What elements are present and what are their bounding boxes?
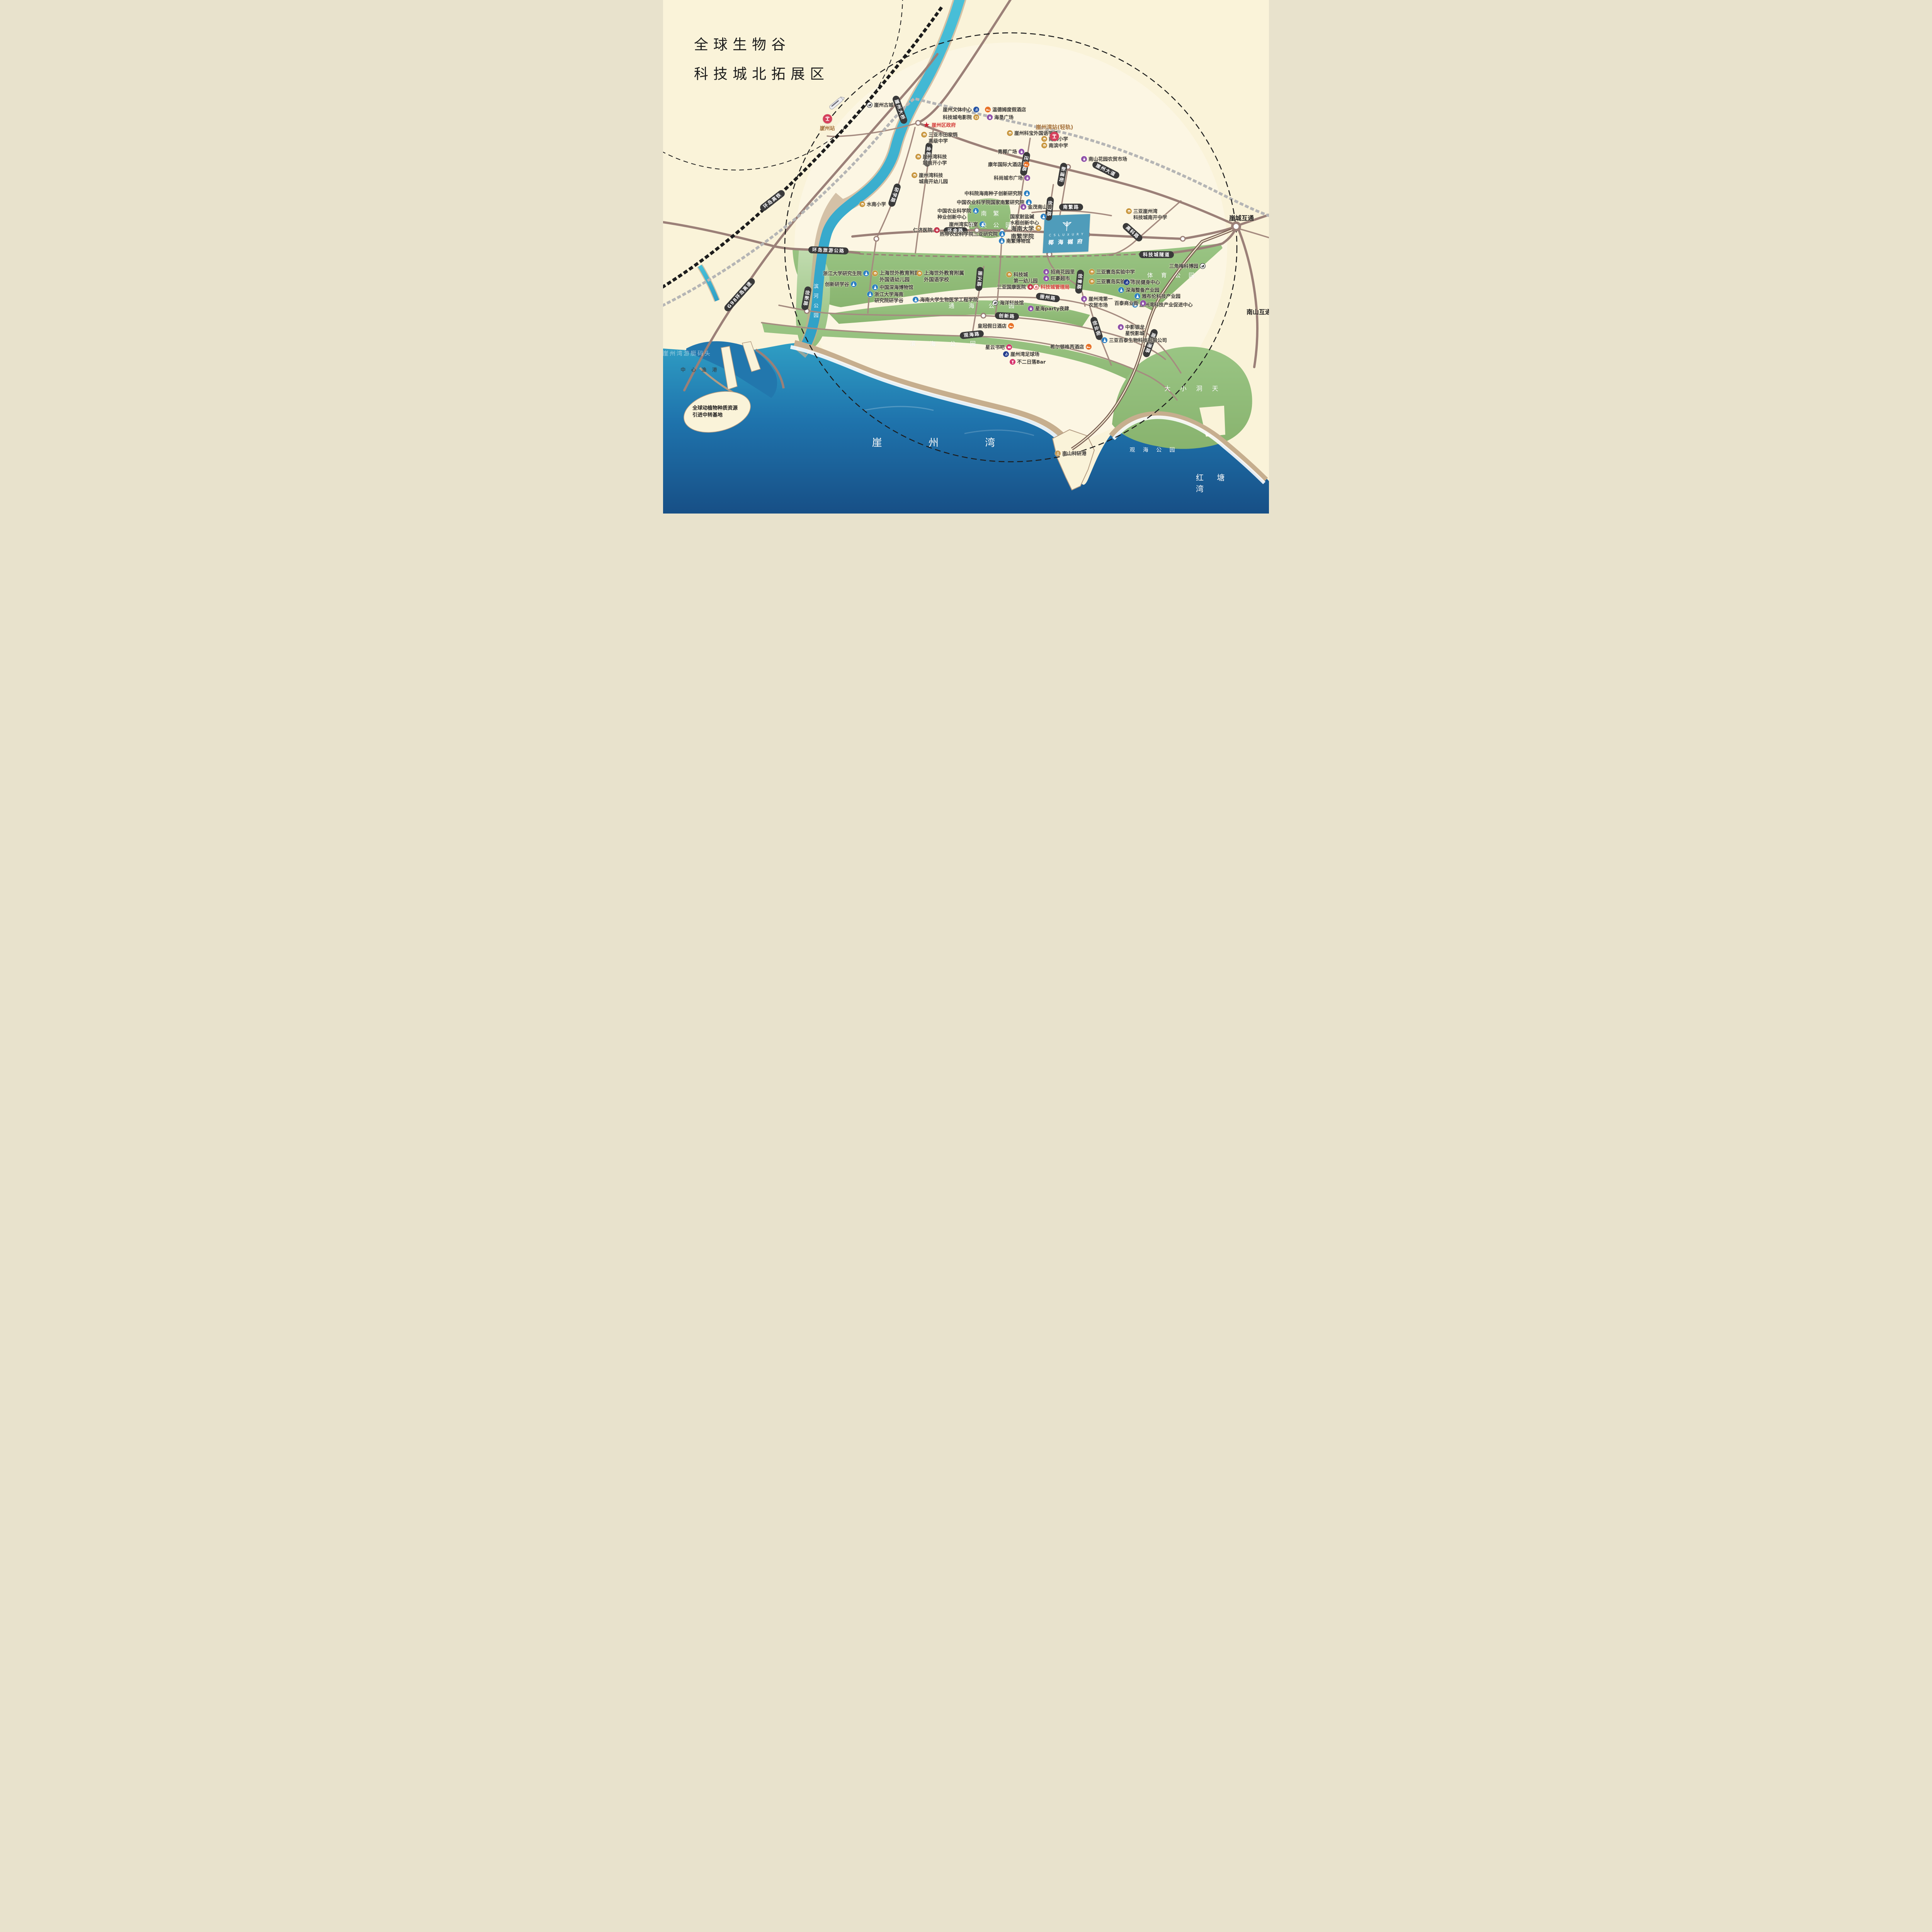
poi-label: 崖州湾科技城南开幼儿园 (912, 172, 948, 185)
poi-text: 旺豪超市 (1051, 276, 1070, 282)
runner-icon (973, 107, 979, 112)
poi-text: 水南小学 (867, 201, 886, 207)
poi-text: 科尚城市广场 (994, 175, 1023, 181)
poi-label: 旺豪超市 (1043, 276, 1070, 282)
poi-label: 中国深海博物馆 (872, 284, 913, 291)
poi-text: 南山花园农贸市场 (1088, 156, 1127, 162)
poi-text: 崖州湾科技城南开幼儿园 (919, 172, 948, 185)
poi-text: 金茂南山荟 (1028, 204, 1052, 210)
area-label: 通 海 公 园 (949, 302, 1020, 310)
poi-label: 崖州湾科技城南开小学 (915, 154, 947, 167)
yazhou-station: 崖州站 (820, 114, 835, 132)
flask-icon (913, 297, 918, 303)
bed-icon (985, 107, 991, 112)
poi-label: 星云书吧 (985, 344, 1012, 350)
bag-icon (1081, 296, 1087, 302)
poi-label: 不二日落Bar (1010, 359, 1046, 365)
map-title-line2: 科技城北拓展区 (694, 60, 829, 89)
poi-label: 南山科研港 (1055, 451, 1087, 457)
poi-label: 崖州文体中心 (943, 107, 979, 113)
poi-label: 星海party夜肆 (1028, 306, 1069, 312)
flask-icon (863, 270, 869, 276)
poi-text: 市民健身中心 (1131, 279, 1160, 286)
grad-icon (859, 201, 865, 207)
poi-text: 南繁博物馆 (1006, 238, 1031, 244)
poi-label: 南山花园农贸市场 (1081, 156, 1127, 162)
bag-icon (1024, 175, 1030, 181)
admin-bureau-poi: 科技城管理局 (1033, 284, 1070, 290)
bed-icon (1086, 344, 1092, 350)
poi-label: 希尔顿格芮酒店 (1050, 344, 1092, 350)
poi-label: 温德姆度假酒店 (985, 107, 1026, 113)
poi-text: 崖州区政府 (932, 122, 956, 128)
grad-icon (1089, 279, 1095, 284)
poi-text: 仁济医院 (913, 227, 932, 233)
poi-text: 三亚国康医院 (997, 284, 1026, 290)
flask-icon (999, 238, 1005, 244)
grad-icon (912, 172, 917, 178)
poi-text: 康年国际大酒店 (988, 162, 1022, 168)
poi-text: 不二日落Bar (1017, 359, 1046, 365)
poi-label: 中科院海南种子创新研究院 (964, 190, 1030, 197)
poi-label: 仁济医院 (913, 227, 940, 233)
poi-label: 中国农业科学院种业创新中心 (937, 208, 979, 221)
map-title-line1: 全球生物谷 (694, 30, 829, 60)
bag-icon (1019, 149, 1024, 155)
poi-text: 三亚百泰生物科技有限公司 (1109, 337, 1167, 344)
poi-label: 三亚崖州湾科技城南开中学 (1126, 208, 1167, 221)
poi-text: 皇冠假日酒店 (978, 323, 1007, 329)
poi-text: 南滨中学 (1049, 143, 1068, 149)
poi-text: 崖州湾第一农贸市场 (1088, 296, 1113, 309)
area-label: 南 繁 (981, 209, 1002, 218)
railway-station-icon (823, 114, 832, 124)
poi-text: 中科院海南种子创新研究院 (964, 190, 1022, 197)
grad-icon (1041, 143, 1047, 148)
poi-text: 中影银龙星悦影城 (1125, 324, 1145, 337)
poi-label: 中影银龙星悦影城 (1118, 324, 1145, 337)
runner-icon (1003, 351, 1009, 357)
poi-text: 三亚寰岛实验中学 (1096, 269, 1135, 275)
poi-text: 三亚崖州湾科技城南开中学 (1133, 208, 1167, 221)
poi-label: 三亚百泰生物科技有限公司 (1102, 337, 1167, 344)
poi-label: 百泰商业街 (1114, 300, 1146, 306)
bold-map-label: 全球动植物种质资源引进中转基地 (692, 405, 738, 418)
poi-text: 青椰广场 (998, 149, 1017, 155)
poi-label: 科技城第一幼儿园 (1006, 272, 1038, 284)
bed-icon (1008, 323, 1014, 329)
poi-text: 崖州湾科技产业促进中心 (1139, 302, 1193, 308)
poi-text: 中国农业科学院种业创新中心 (937, 208, 971, 221)
grad-icon (1006, 272, 1012, 277)
poi-label: 金茂南山荟 (1020, 204, 1052, 210)
bag-icon (1043, 276, 1049, 281)
road-pill: 科技城隧道 (1139, 251, 1174, 258)
anchor-icon (1055, 451, 1061, 456)
poi-label: 三角梅科博园 (1169, 263, 1206, 269)
area-label: 中 央 公 园 (969, 221, 1014, 229)
poi-text: 希尔顿格芮酒店 (1050, 344, 1084, 350)
poi-text: 三角梅科博园 (1169, 263, 1198, 269)
poi-label: 上海世外教育附属外国语幼儿园 (872, 270, 920, 284)
cocktail-icon (1010, 359, 1015, 365)
poi-label: 水南小学 (859, 201, 886, 207)
poi-label: 雅布伦科技产业园 (1134, 293, 1180, 299)
poi-label: 创新研学谷 (825, 281, 857, 287)
grad-icon (1126, 208, 1132, 214)
bag-icon (987, 114, 993, 120)
poi-label: 康年国际大酒店 (988, 162, 1029, 168)
poi-text: 百泰商业街 (1114, 300, 1139, 306)
poi-label: 海垦广场 (987, 114, 1014, 121)
road-pill: 环岛旅游公路 (808, 246, 849, 255)
poi-label: 热带农业科学院三亚研究院 (940, 231, 1005, 237)
bag-icon (1028, 306, 1034, 311)
map-title: 全球生物谷 科技城北拓展区 (694, 30, 829, 89)
bag-icon (1043, 269, 1049, 275)
poi-label: 浙江大学研究生院 (823, 270, 869, 277)
grad-icon (1089, 269, 1095, 275)
flask-icon (1024, 190, 1030, 196)
poi-text: 深海整备产业园 (1126, 287, 1160, 293)
area-label: 观 海 公 园 (1129, 446, 1178, 454)
poi-label: 崖州湾第一农贸市场 (1081, 296, 1113, 309)
yazhou-bay-area-map: 全球生物谷 科技城北拓展区 C S L U X U R Y 椰 海 樾 府 崖州… (663, 0, 1269, 514)
poi-label: 三亚寰岛实验中学 (1089, 269, 1135, 275)
poi-label: 青椰广场 (998, 149, 1024, 155)
grad-icon (1007, 130, 1013, 136)
film-icon (973, 114, 979, 120)
poi-text: 温德姆度假酒店 (992, 107, 1026, 113)
poi-text: 海垦广场 (994, 114, 1014, 121)
poi-text: 中国深海博物馆 (879, 284, 913, 291)
station-name: 崖州站 (820, 124, 835, 132)
bold-map-label: 崖城互通 (1229, 214, 1254, 223)
poi-text: 雅布伦科技产业园 (1142, 293, 1180, 299)
poi-label: 科技城电影院 (943, 114, 979, 121)
bag-icon (1140, 300, 1146, 306)
poi-label: 崖州湾足球场 (1003, 351, 1039, 357)
poi-text: 上海世外教育附属外国语学校 (924, 270, 964, 284)
government-star-poi: ★崖州区政府 (923, 122, 956, 128)
flask-icon (851, 281, 857, 287)
project-name: 椰 海 樾 府 (1048, 237, 1084, 246)
flask-icon (1102, 337, 1107, 343)
grad-icon (917, 270, 922, 276)
poi-text: 南山科研港 (1062, 451, 1087, 457)
poi-text: 创新研学谷 (825, 281, 849, 287)
flask-icon (999, 231, 1005, 237)
poi-text: 崖州湾足球场 (1010, 351, 1039, 357)
poi-label: 崖州古城 (867, 102, 893, 108)
poi-text: 热带农业科学院三亚研究院 (940, 231, 998, 237)
flask-icon (1134, 293, 1140, 299)
building-outline-icon (867, 102, 872, 108)
yazhouwan-station: 崖州湾站(轻轨) (1036, 123, 1073, 141)
poi-text: 上海世外教育附属外国语幼儿园 (879, 270, 920, 284)
grad-icon (1036, 225, 1041, 231)
poi-label: 科尚城市广场 (994, 175, 1030, 181)
poi-label: 国家耐盐碱水稻创新中心 (1010, 214, 1046, 226)
area-label: 崖 州 湾 (872, 435, 1017, 449)
poi-label: 市民健身中心 (1124, 279, 1160, 286)
poi-text: 三亚市田家炳高级中学 (929, 132, 957, 145)
road-pill: 创新路 (995, 312, 1019, 320)
grad-icon (872, 270, 878, 276)
poi-text: 招商花园里 (1051, 269, 1075, 275)
bold-map-label: 南山互通 (1247, 308, 1269, 316)
poi-label: 三亚市田家炳高级中学 (921, 132, 957, 145)
poi-label: 招商花园里 (1043, 269, 1075, 275)
bag-icon (1081, 156, 1087, 162)
poi-label: 南繁博物馆 (999, 238, 1031, 244)
building-outline-icon (1200, 263, 1206, 269)
area-label: 滨河公园 (812, 284, 819, 322)
area-label: 大 小 洞 天 (1164, 383, 1222, 393)
project-brand: C S L U X U R Y (1049, 232, 1084, 237)
area-label: 红 塘 湾 (1196, 471, 1245, 494)
bag-icon (1020, 204, 1026, 210)
poi-text: 国家耐盐碱水稻创新中心 (1010, 214, 1039, 226)
poi-label: 深海整备产业园 (1118, 287, 1160, 293)
poi-label: 三亚国康医院 (997, 284, 1033, 290)
area-label: 崖州湾游艇码头 (663, 349, 711, 357)
palm-logo-icon (1061, 221, 1073, 231)
railway-station-icon (1050, 132, 1059, 141)
gov-icon (1033, 284, 1039, 290)
area-label: 体 育 公 园 (1147, 271, 1197, 279)
poi-text: 崖州湾科技城南开小学 (923, 154, 947, 167)
poi-label: 南滨中学 (1041, 143, 1068, 149)
poi-text: 浙江大学研究生院 (823, 270, 862, 277)
flask-icon (973, 208, 979, 214)
poi-text: 星云书吧 (985, 344, 1005, 350)
book-icon (1006, 344, 1012, 350)
grad-icon (921, 132, 927, 138)
poi-text: 浙江大学海南研究院研学谷 (874, 291, 903, 304)
poi-text: 星海party夜肆 (1035, 306, 1069, 312)
road-pill: 南繁路 (1059, 204, 1083, 211)
poi-text: 崖州古城 (874, 102, 893, 108)
poi-text: 中国农业科学院国家南繁研究院 (957, 199, 1024, 206)
poi-label: 浙江大学海南研究院研学谷 (867, 291, 903, 304)
bed-icon (1024, 162, 1029, 167)
poi-text: 科技城电影院 (943, 114, 972, 121)
poi-text: 科技城第一幼儿园 (1014, 272, 1038, 284)
cross-icon (934, 227, 940, 233)
grad-icon (915, 154, 921, 160)
station-name: 崖州湾站(轻轨) (1036, 123, 1073, 131)
poi-label: 上海世外教育附属外国语学校 (917, 270, 964, 284)
flask-icon (1118, 287, 1124, 293)
cross-icon (1027, 284, 1033, 290)
area-label: 滨 海 公 园 (910, 340, 982, 348)
bag-icon (1118, 324, 1124, 330)
poi-text: 崖州文体中心 (943, 107, 972, 113)
poi-text: 科技城管理局 (1041, 284, 1070, 290)
flask-icon (1041, 214, 1046, 219)
flask-icon (872, 284, 878, 290)
runner-icon (1124, 279, 1129, 285)
poi-label: 皇冠假日酒店 (978, 323, 1014, 329)
red-star-icon: ★ (923, 122, 930, 128)
flask-icon (867, 291, 873, 297)
area-label: 中 心 渔 港 (680, 366, 719, 373)
